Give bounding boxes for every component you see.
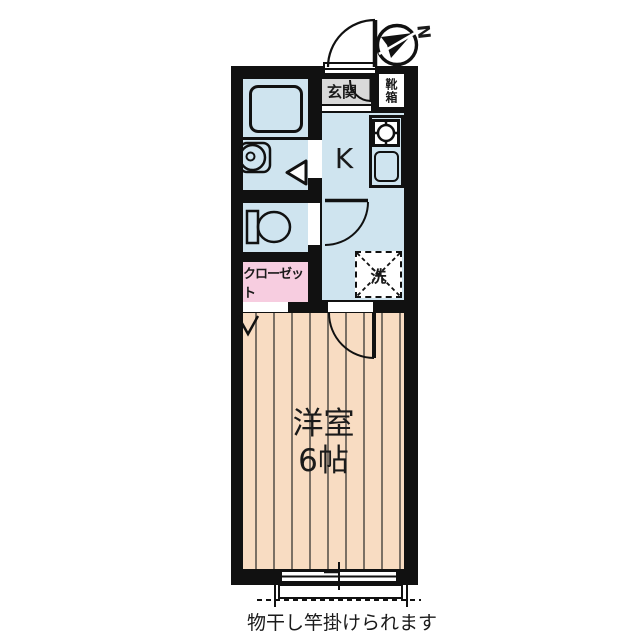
folding-door-icon — [287, 161, 306, 184]
entrance-label: 玄関 — [322, 79, 362, 104]
entrance-door-arc — [328, 20, 375, 67]
north-compass-icon — [378, 26, 417, 65]
toilet-door-arc — [325, 201, 368, 246]
sliding-window-marks — [282, 562, 396, 590]
stove-burner-icon — [374, 121, 398, 145]
balcony-note: 物干し竿掛けられます — [242, 608, 442, 634]
room-name: 洋室 — [293, 406, 355, 443]
room-door-arc — [329, 313, 374, 358]
closet-folding-door-icon — [238, 316, 258, 334]
room-label: 洋室 6帖 — [243, 403, 404, 483]
washbasin-icon — [240, 143, 270, 172]
shoebox-label: 靴箱 — [379, 75, 404, 107]
north-letter: N — [411, 20, 435, 44]
floor-plan: 玄関 靴箱 K 洗 クローゼット 洋室 6帖 物干し竿掛けられます N — [0, 0, 640, 639]
washing-machine-label: 洗 — [355, 262, 402, 287]
symbols-layer — [0, 0, 640, 639]
toilet-icon — [247, 211, 290, 243]
room-size: 6帖 — [298, 443, 349, 480]
kitchen-label: K — [322, 139, 366, 177]
closet-label: クローゼット — [243, 262, 308, 302]
